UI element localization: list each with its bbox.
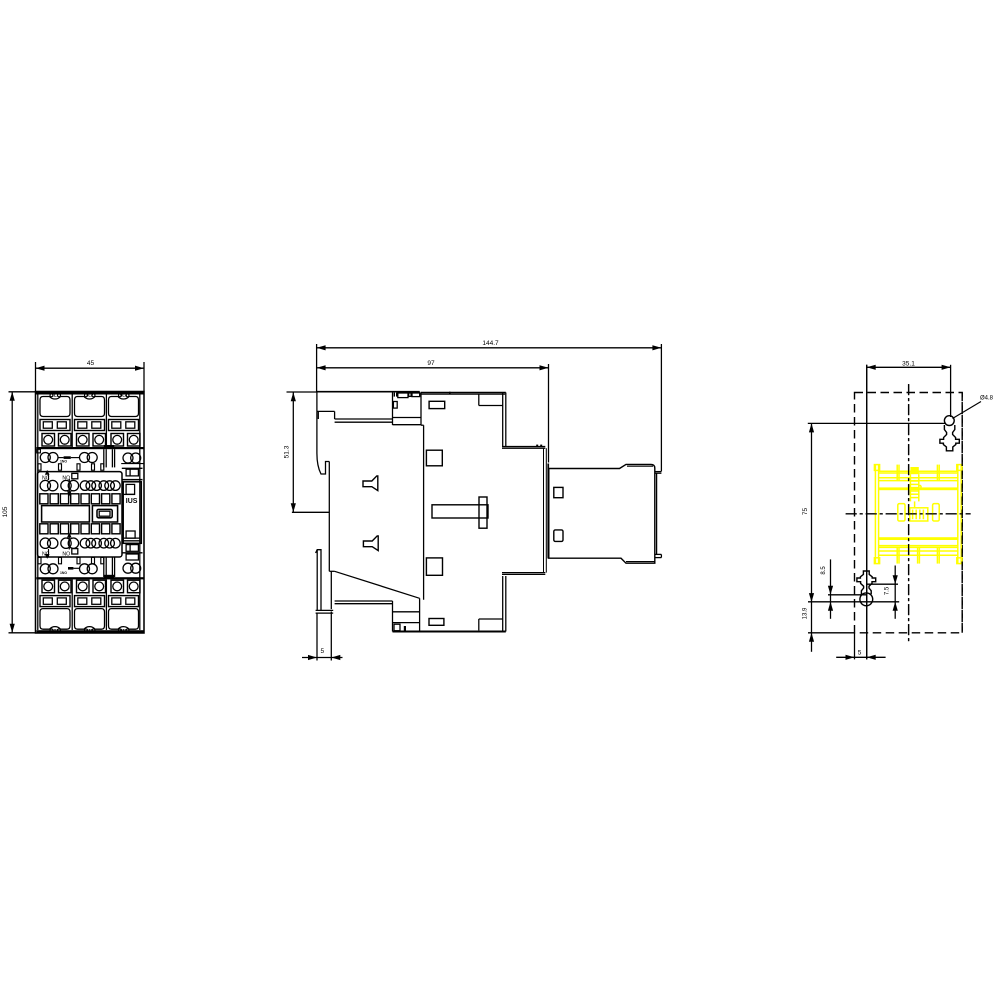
svg-text:35.1: 35.1 [902, 360, 915, 367]
svg-text:75: 75 [802, 508, 809, 516]
svg-text:144.7: 144.7 [482, 340, 499, 347]
svg-text:51.3: 51.3 [283, 445, 290, 458]
svg-text:5: 5 [858, 650, 862, 657]
svg-text:97: 97 [427, 360, 435, 367]
svg-text:7.5: 7.5 [885, 586, 891, 595]
svg-text:5L3: 5L3 [120, 392, 128, 397]
svg-text:1L1: 1L1 [51, 392, 59, 397]
svg-text:1NO: 1NO [60, 460, 67, 464]
svg-text:45: 45 [87, 360, 95, 367]
svg-text:4T2: 4T2 [86, 628, 94, 633]
svg-text:Ø4.8: Ø4.8 [980, 396, 994, 402]
svg-text:105: 105 [2, 506, 9, 517]
svg-text:3L2: 3L2 [86, 392, 94, 397]
svg-text:NO: NO [62, 551, 70, 557]
svg-text:5: 5 [320, 648, 324, 655]
svg-text:1NO: 1NO [60, 571, 67, 575]
svg-text:13.9: 13.9 [802, 607, 808, 619]
svg-text:2T1: 2T1 [51, 628, 59, 633]
svg-text:IUS: IUS [126, 498, 138, 505]
svg-text:6T3: 6T3 [120, 628, 128, 633]
svg-text:8.5: 8.5 [821, 566, 827, 575]
